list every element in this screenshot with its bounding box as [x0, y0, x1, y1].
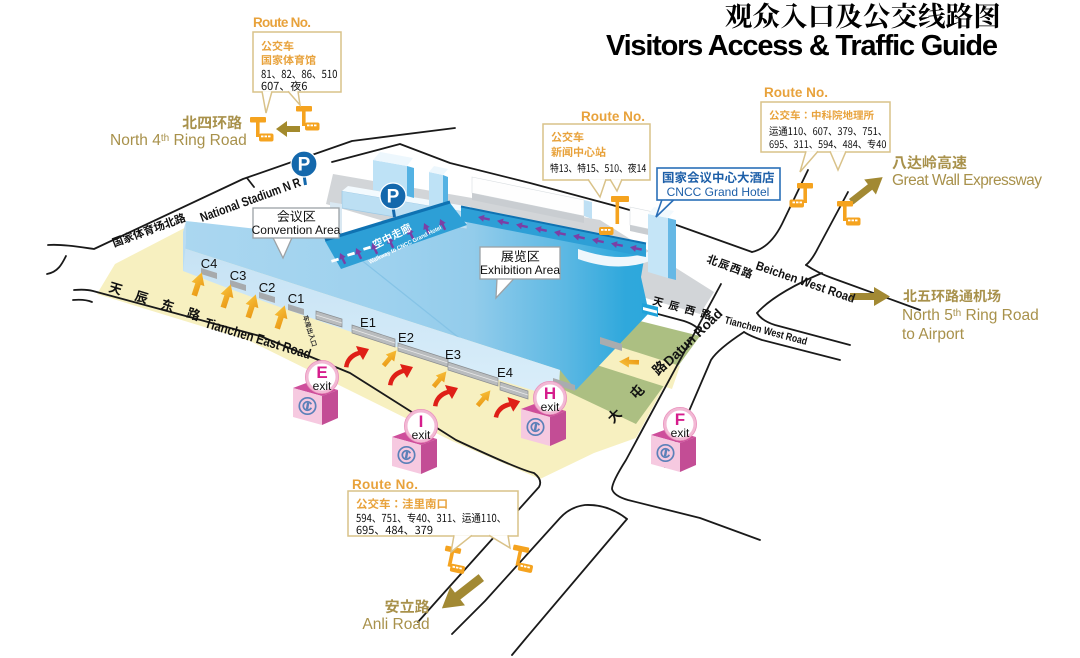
svg-text:E3: E3: [445, 347, 461, 362]
svg-text:to Airport: to Airport: [902, 326, 965, 343]
svg-text:Anli Road: Anli Road: [362, 616, 429, 633]
svg-text:exit: exit: [671, 426, 690, 440]
svg-text:C4: C4: [201, 256, 218, 271]
svg-text:Convention Area: Convention Area: [252, 223, 341, 237]
svg-text:C1: C1: [288, 291, 305, 306]
svg-text:Exhibition Area: Exhibition Area: [480, 263, 560, 277]
svg-text:Great Wall Expressway: Great Wall Expressway: [892, 172, 1042, 189]
svg-text:Route No.: Route No.: [352, 477, 418, 492]
svg-text:North 5th Ring Road: North 5th Ring Road: [902, 307, 1039, 324]
svg-text:E4: E4: [497, 365, 513, 380]
svg-text:exit: exit: [541, 400, 560, 414]
svg-text:P: P: [298, 155, 311, 176]
svg-text:E2: E2: [398, 330, 414, 345]
svg-text:C2: C2: [259, 280, 276, 295]
svg-text:Visitors Access & Traffic Guid: Visitors Access & Traffic Guide: [606, 30, 998, 62]
svg-text:North 4th Ring Road: North 4th Ring Road: [110, 132, 247, 149]
svg-text:exit: exit: [313, 379, 332, 393]
svg-text:exit: exit: [412, 428, 431, 442]
svg-text:C3: C3: [230, 268, 247, 283]
svg-text:Route No.: Route No.: [764, 85, 828, 100]
svg-text:Route No.: Route No.: [253, 15, 311, 30]
svg-text:P: P: [387, 187, 400, 208]
svg-text:Route No.: Route No.: [581, 109, 645, 124]
svg-text:E1: E1: [360, 315, 376, 330]
svg-text:CNCC Grand Hotel: CNCC Grand Hotel: [667, 185, 770, 199]
